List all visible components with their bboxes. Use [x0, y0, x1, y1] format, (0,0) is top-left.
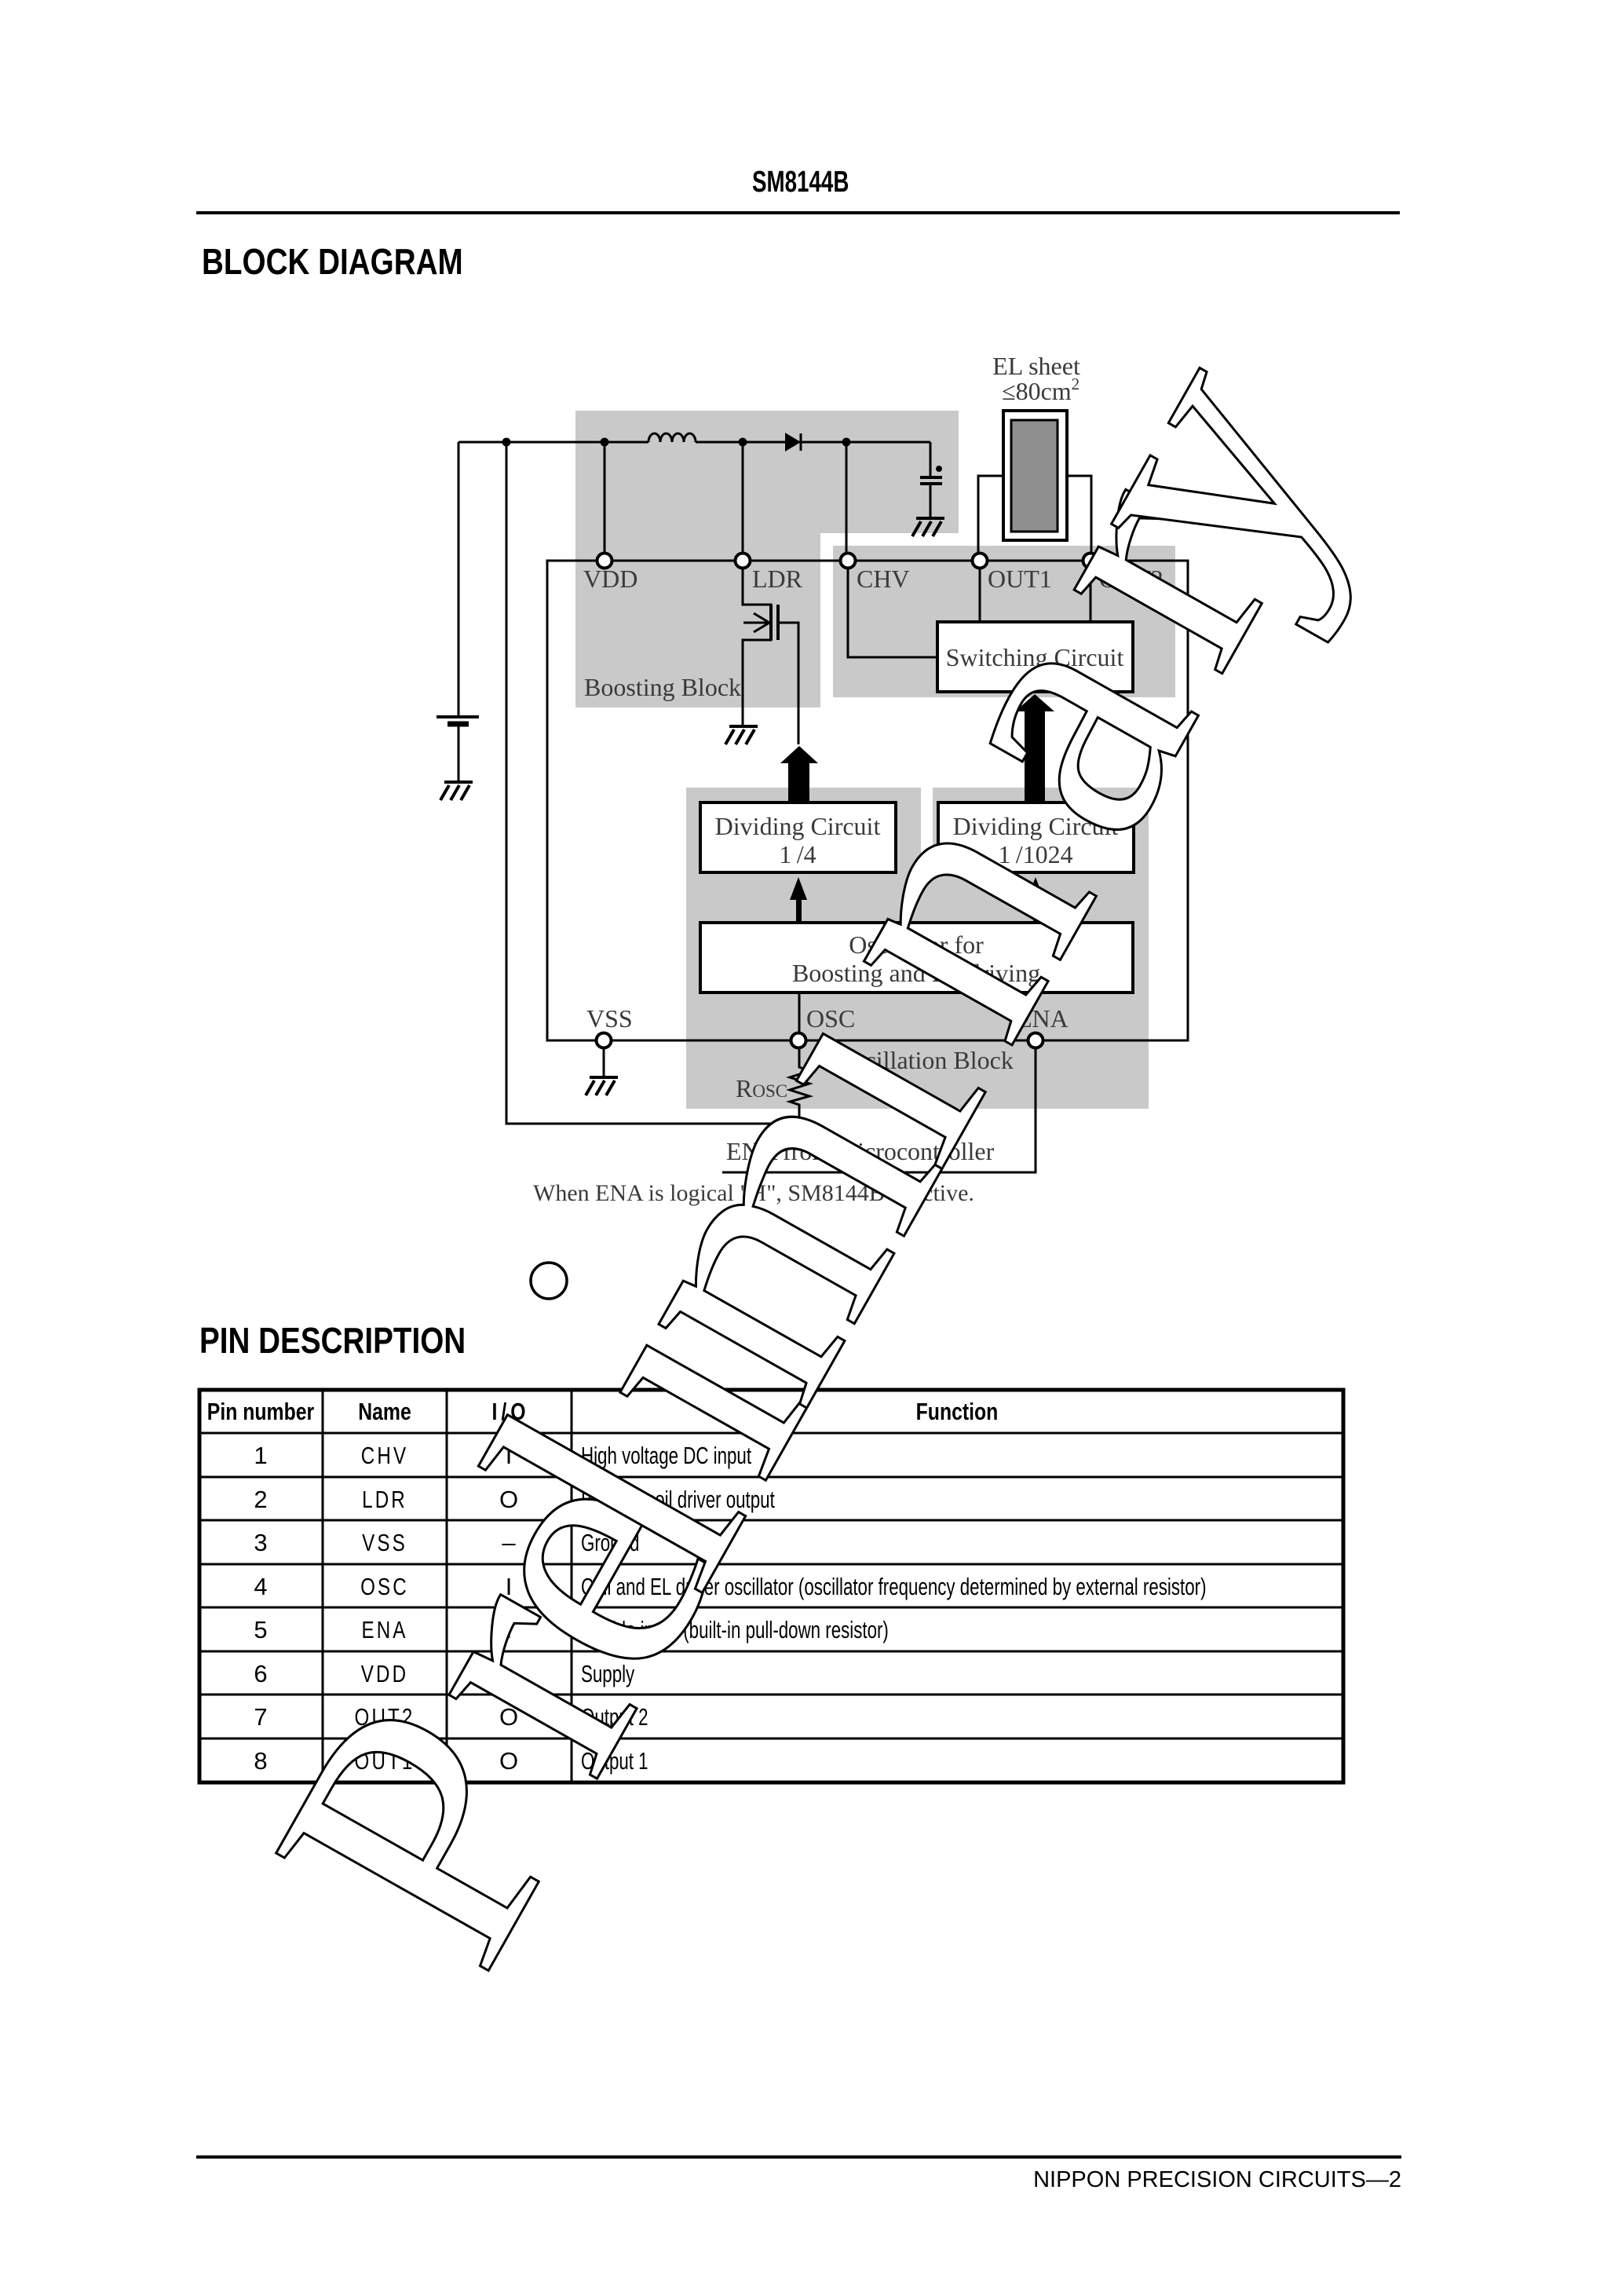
svg-text:Prelımınary: Prelımınary [195, 288, 1419, 2022]
